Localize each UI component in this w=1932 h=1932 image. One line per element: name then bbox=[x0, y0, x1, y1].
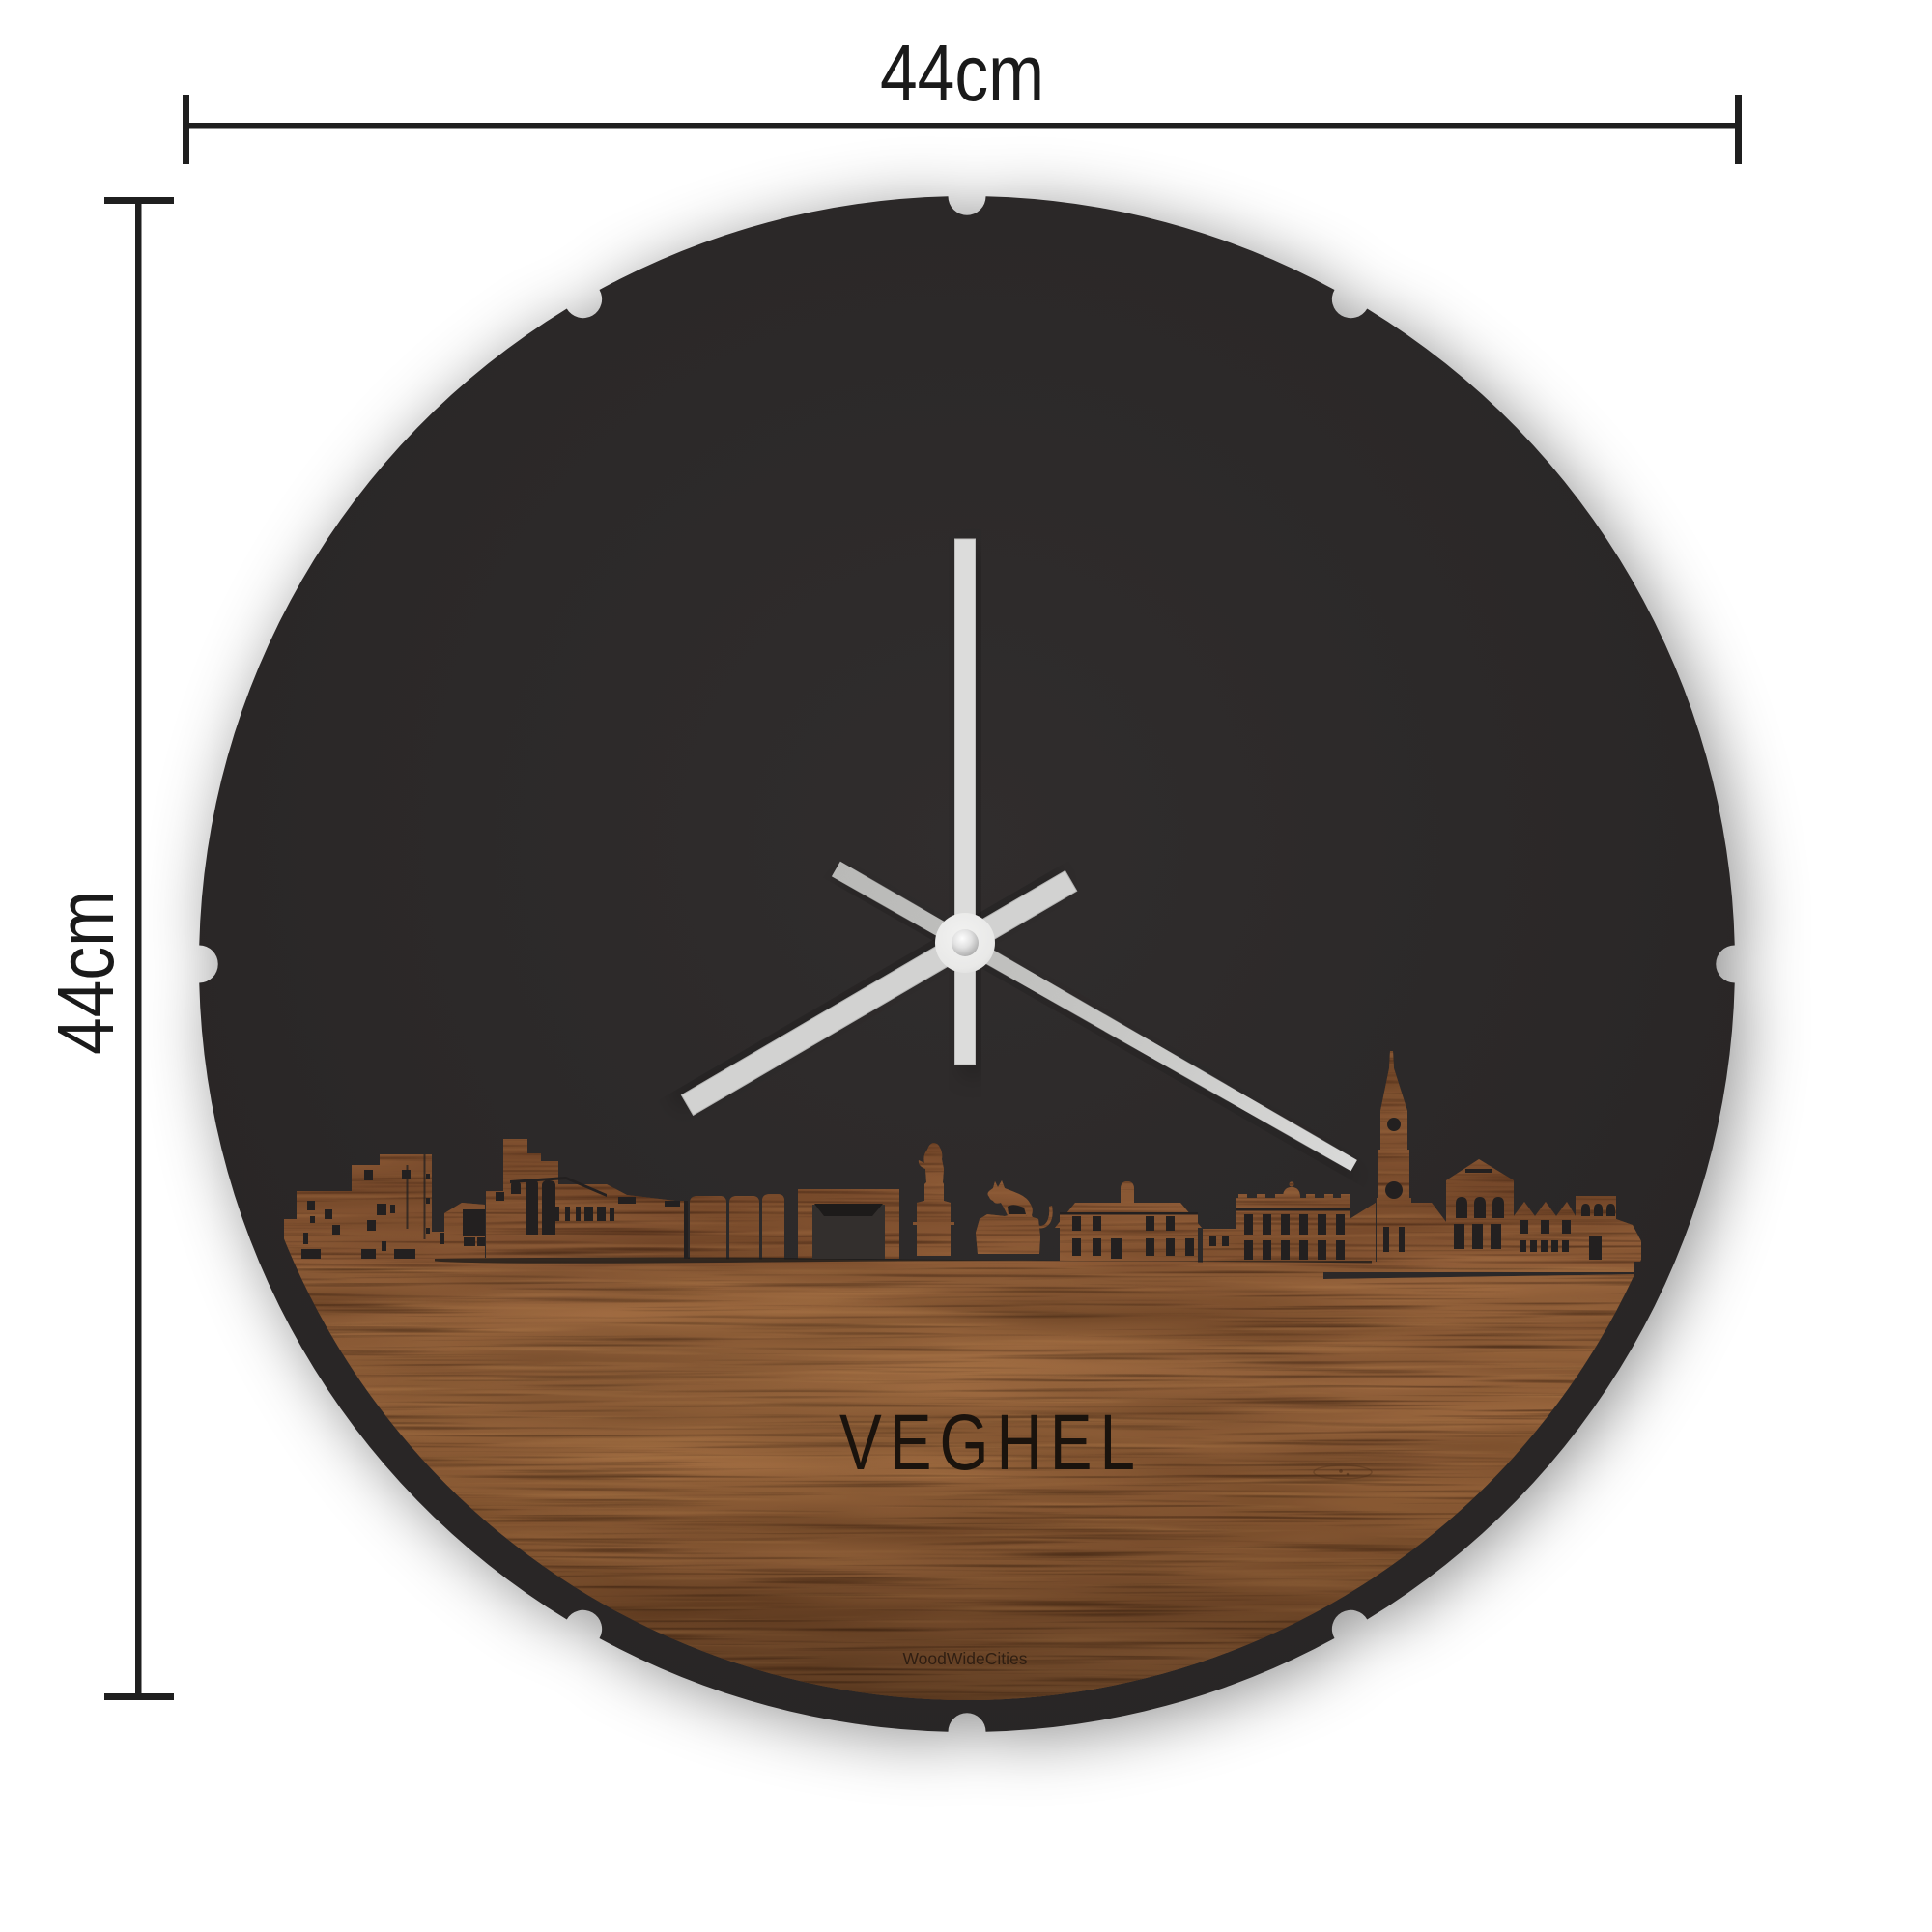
svg-text:WoodWideCities: WoodWideCities bbox=[902, 1649, 1027, 1668]
svg-text:44cm: 44cm bbox=[880, 28, 1044, 118]
svg-text:44cm: 44cm bbox=[41, 891, 130, 1055]
svg-text:VEGHEL: VEGHEL bbox=[839, 1399, 1143, 1487]
